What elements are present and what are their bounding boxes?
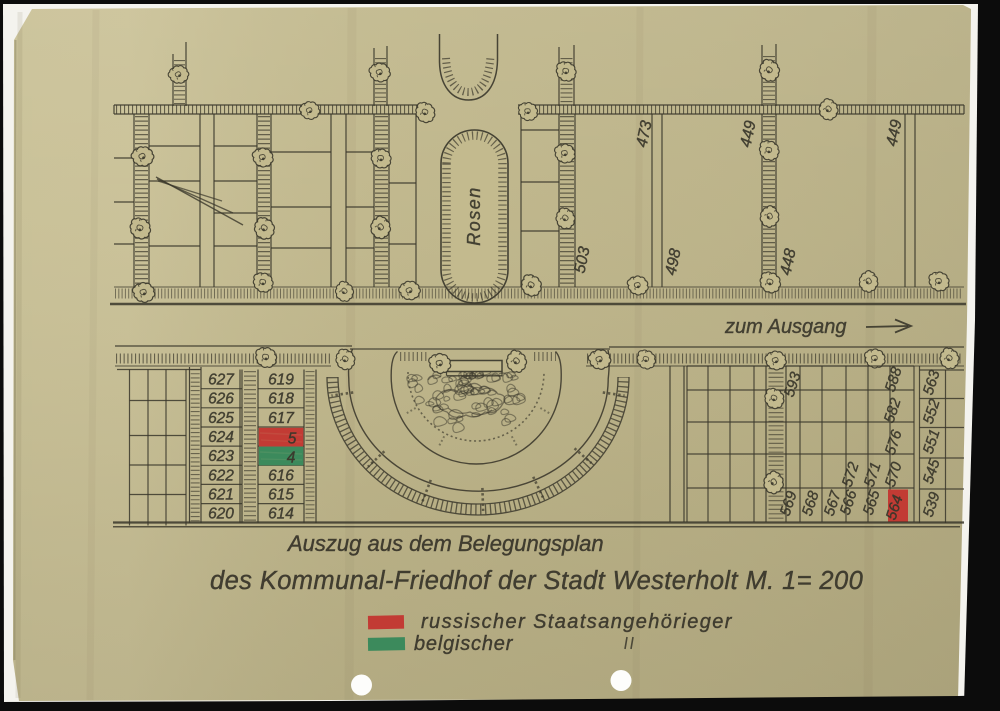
svg-text:627: 627 (208, 372, 235, 389)
svg-text:625: 625 (208, 410, 234, 427)
svg-text:zum Ausgang: zum Ausgang (724, 316, 847, 338)
svg-text:618: 618 (268, 391, 294, 408)
svg-text:615: 615 (268, 486, 294, 503)
svg-text:Rosen: Rosen (464, 186, 484, 246)
svg-text:620: 620 (208, 506, 234, 523)
svg-text:Auszug aus dem Belegungsplan: Auszug aus dem Belegungsplan (286, 531, 604, 556)
svg-text:617: 617 (268, 410, 295, 427)
svg-text:belgischer: belgischer (414, 633, 514, 655)
svg-text:des Kommunal-Friedhof der Stad: des Kommunal-Friedhof der Stadt Westerho… (210, 567, 863, 595)
svg-text:614: 614 (268, 506, 294, 523)
svg-text:623: 623 (208, 448, 234, 465)
svg-text:624: 624 (208, 429, 234, 446)
svg-text:626: 626 (208, 391, 234, 408)
svg-text:russischer Staatsangehörieger: russischer Staatsangehörieger (421, 611, 733, 633)
svg-text:5: 5 (288, 430, 297, 447)
svg-text:4: 4 (287, 450, 296, 467)
svg-text:622: 622 (208, 467, 234, 484)
svg-text:621: 621 (208, 486, 234, 503)
svg-text:619: 619 (268, 372, 294, 389)
svg-text:616: 616 (268, 467, 294, 484)
